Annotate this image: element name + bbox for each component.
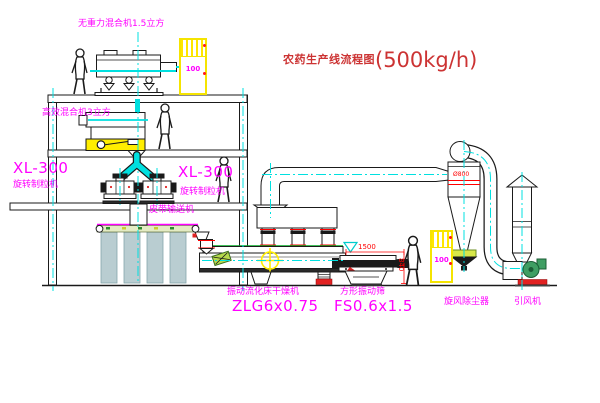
label-dryer-model: ZLG6x0.75 bbox=[232, 299, 319, 314]
dim-cyclone-diameter: Ø800 bbox=[453, 172, 469, 178]
person-figure bbox=[157, 104, 172, 149]
dryer-plenum bbox=[257, 208, 337, 247]
flow-diagram-canvas: 100 100 农药生产线流程图(500kg/h) 无重力混合机1.5立方 高效… bbox=[0, 0, 600, 403]
dim-sieve-height: 840 bbox=[397, 258, 404, 271]
induced-draft-fan bbox=[503, 259, 550, 287]
belt-conveyor bbox=[96, 225, 199, 284]
label-granulator-right-name: 旋转制粒机 bbox=[180, 188, 225, 197]
label-sieve-name: 方形振动筛 bbox=[340, 288, 385, 297]
control-cabinet-2: 100 bbox=[430, 230, 453, 283]
label-sieve-model: FS0.6x1.5 bbox=[334, 299, 413, 314]
label-granulator-left-name: 旋转制粒机 bbox=[13, 181, 58, 190]
cabinet-label: 100 bbox=[181, 65, 205, 73]
cabinet-grid bbox=[432, 232, 451, 248]
label-high-eff-mixer: 高效混合机3立方 bbox=[42, 109, 111, 118]
diagram-title: 农药生产线流程图(500kg/h) bbox=[283, 48, 477, 72]
person-figure bbox=[72, 49, 87, 94]
label-granulator-right-model: XL-300 bbox=[178, 165, 233, 180]
label-dryer-name: 振动流化床干燥机 bbox=[227, 288, 299, 297]
cabinet-grid bbox=[181, 40, 205, 57]
label-gravity-mixer: 无重力混合机1.5立方 bbox=[78, 20, 164, 29]
label-cyclone: 旋风除尘器 bbox=[444, 298, 489, 307]
label-belt-conveyor: 皮带输送机 bbox=[149, 206, 194, 215]
control-cabinet-1: 100 bbox=[179, 38, 207, 95]
label-granulator-left-model: XL-300 bbox=[13, 161, 68, 176]
dim-sieve-length: 1500 bbox=[358, 244, 376, 251]
title-capacity: (500kg/h) bbox=[375, 48, 477, 72]
label-fan: 引风机 bbox=[514, 298, 541, 307]
title-chinese: 农药生产线流程图 bbox=[283, 53, 375, 66]
